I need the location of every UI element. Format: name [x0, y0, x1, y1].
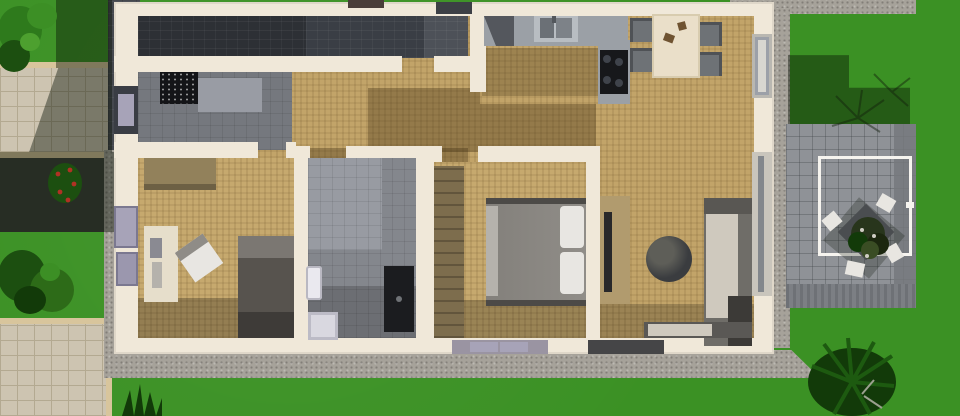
dining-chair-4 — [700, 52, 722, 76]
dining-chair-3 — [700, 22, 722, 46]
entry-concrete-pad — [198, 78, 262, 112]
top-roof-notch — [348, 0, 384, 8]
single-bed-head — [238, 236, 294, 258]
wall-master-east — [586, 146, 600, 338]
house-shadow-left-lawn — [56, 0, 112, 68]
sofa-chaise-cushion — [648, 324, 712, 336]
wall-master-west — [416, 146, 434, 338]
burner-1 — [603, 55, 611, 63]
corridor-shadow-2 — [368, 88, 480, 152]
bed-pillow-1 — [560, 206, 584, 248]
wardrobe-left-bedroom — [144, 158, 216, 190]
dining-table — [652, 14, 700, 78]
tv-screen — [604, 212, 612, 292]
bathroom-floor-light — [308, 158, 382, 250]
patio-deck-border — [786, 284, 916, 308]
round-ottoman — [646, 236, 692, 282]
desk-lamp — [152, 262, 162, 288]
wall-garage-south-left — [114, 56, 402, 72]
garage-floor-light — [424, 16, 468, 58]
floorplan-render — [0, 0, 960, 416]
burner-3 — [603, 76, 611, 84]
sliding-glass-pane — [758, 156, 764, 292]
garage-floor-mid — [306, 16, 424, 58]
shower-drain — [396, 296, 402, 302]
wall-master-north — [478, 146, 600, 162]
sofa-armrest — [704, 198, 752, 214]
wall-bedroom-left-north — [114, 142, 258, 158]
bush-bottom-right — [804, 336, 900, 416]
burner-4 — [615, 79, 623, 87]
right-wall-window — [752, 34, 772, 98]
left-wall-window-2 — [116, 252, 138, 286]
paver-walkway-lower — [0, 324, 106, 416]
left-wall-window-1 — [114, 206, 138, 248]
bed-pillow-2 — [560, 252, 584, 294]
bushes-bottom-left — [0, 242, 78, 326]
sink-basin-right — [556, 18, 572, 38]
bed-foot-bench — [486, 206, 498, 296]
desk-paper — [150, 238, 162, 258]
sofa-dark-end — [728, 296, 752, 346]
bathtub — [308, 312, 338, 340]
single-bed-fold — [238, 312, 294, 338]
master-wardrobe — [434, 166, 464, 338]
red-berry-bush — [46, 160, 84, 206]
burner-2 — [615, 58, 623, 66]
front-door-panel — [118, 94, 134, 126]
dining-chair-2 — [630, 48, 652, 72]
bottom-window-dark — [588, 340, 664, 354]
bottom-window-pane-1 — [470, 342, 498, 352]
bush-top-left — [0, 0, 62, 78]
kitchen-floor-shadow — [482, 48, 600, 96]
bottom-window-pane-2 — [500, 342, 528, 352]
pergola-post-mid — [906, 202, 914, 208]
dining-chair-1 — [630, 18, 652, 42]
bathroom-sink — [306, 266, 322, 300]
sink-faucet — [552, 16, 556, 23]
grass-tuft-bottom-center — [118, 384, 164, 416]
top-wall-window — [436, 2, 472, 14]
wall-master-north-stub — [434, 146, 442, 162]
gravel-apron-bottom — [104, 350, 820, 378]
patio-potted-plant — [840, 206, 896, 272]
wall-bath-west — [294, 146, 308, 338]
entry-doormat — [160, 72, 198, 104]
